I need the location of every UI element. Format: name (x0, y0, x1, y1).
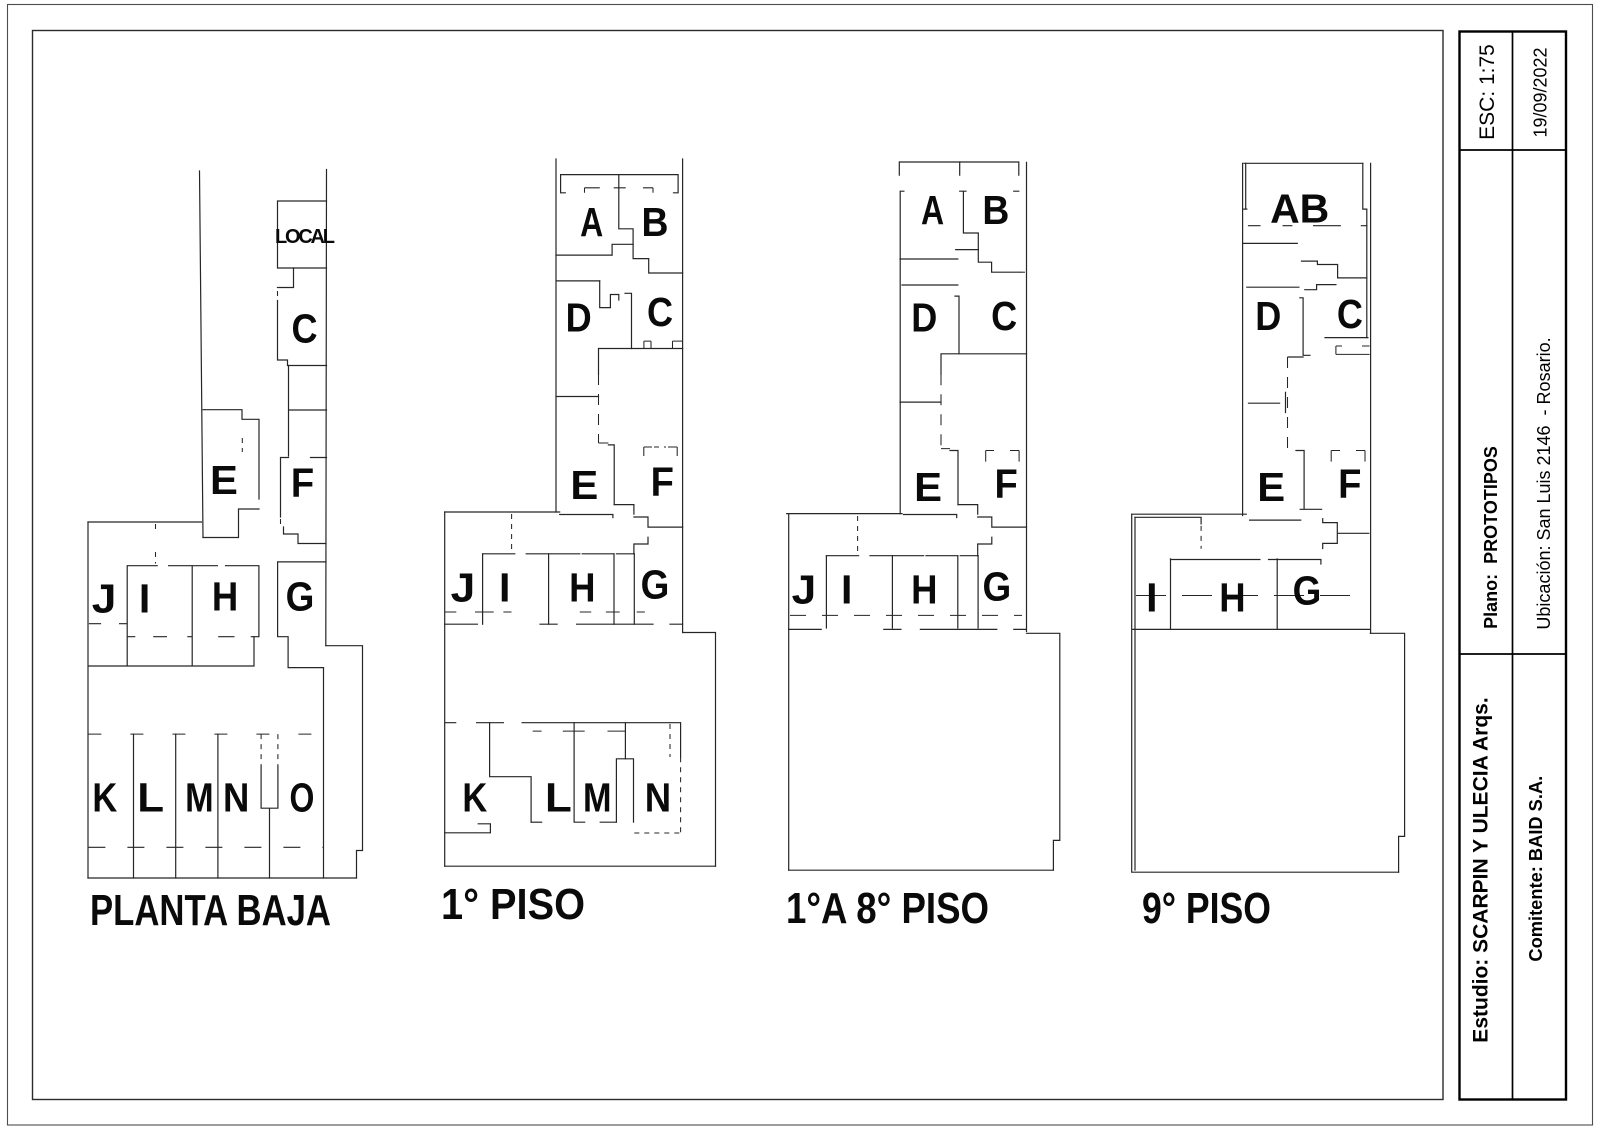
svg-text:K: K (462, 776, 487, 821)
svg-text:O: O (289, 775, 314, 821)
svg-text:Estudio: SCARPIN Y ULECIA Arqs: Estudio: SCARPIN Y ULECIA Arqs. (1470, 697, 1493, 1042)
svg-text:H: H (911, 568, 937, 613)
svg-text:1°A 8° PISO: 1°A 8° PISO (786, 884, 989, 933)
svg-text:J: J (92, 576, 117, 622)
svg-text:A: A (921, 187, 944, 233)
svg-text:1° PISO: 1° PISO (441, 880, 585, 929)
svg-text:B: B (642, 200, 669, 245)
svg-text:ESC: 1:75: ESC: 1:75 (1476, 44, 1499, 140)
svg-text:E: E (1257, 464, 1285, 510)
svg-text:K: K (92, 776, 117, 821)
svg-text:E: E (570, 462, 598, 508)
svg-text:AB: AB (1270, 186, 1329, 232)
svg-text:I: I (841, 567, 852, 613)
svg-text:H: H (212, 575, 238, 620)
svg-text:I: I (139, 576, 150, 622)
svg-text:C: C (647, 290, 673, 336)
svg-text:Ubicación: San Luis 2146 - Ro: Ubicación: San Luis 2146 - Rosario. (1534, 337, 1554, 629)
svg-text:D: D (566, 296, 592, 342)
svg-text:C: C (1337, 292, 1363, 338)
svg-text:D: D (1255, 294, 1281, 340)
svg-text:C: C (991, 294, 1017, 340)
svg-text:G: G (983, 565, 1012, 610)
svg-text:G: G (641, 563, 670, 608)
svg-text:D: D (911, 296, 937, 342)
svg-text:E: E (914, 464, 942, 510)
svg-text:N: N (645, 776, 671, 821)
svg-text:I: I (1146, 575, 1157, 621)
svg-text:F: F (291, 461, 314, 507)
svg-text:LOCAL: LOCAL (275, 226, 335, 248)
svg-text:H: H (1219, 576, 1245, 621)
svg-text:PLANTA BAJA: PLANTA BAJA (90, 886, 331, 935)
svg-text:H: H (569, 566, 595, 611)
svg-text:J: J (451, 565, 476, 611)
svg-text:Plano: PROTOTIPOS: Plano: PROTOTIPOS (1481, 446, 1501, 629)
svg-text:E: E (210, 457, 238, 503)
svg-text:A: A (580, 199, 603, 245)
svg-text:G: G (1293, 569, 1322, 614)
svg-text:B: B (982, 188, 1009, 233)
svg-text:C: C (291, 306, 317, 352)
svg-text:L: L (137, 775, 164, 820)
svg-text:L: L (545, 775, 572, 820)
svg-text:F: F (1338, 462, 1361, 508)
svg-text:9° PISO: 9° PISO (1142, 884, 1271, 933)
svg-text:I: I (499, 565, 510, 611)
svg-text:Comitente: BAID S.A.: Comitente: BAID S.A. (1525, 776, 1546, 962)
svg-text:F: F (651, 460, 674, 506)
svg-text:G: G (286, 575, 315, 620)
svg-text:19/09/2022: 19/09/2022 (1531, 47, 1551, 137)
svg-text:M: M (583, 776, 612, 822)
svg-text:N: N (223, 776, 249, 821)
svg-text:M: M (185, 776, 214, 822)
svg-text:F: F (994, 462, 1017, 508)
svg-text:J: J (792, 567, 817, 613)
